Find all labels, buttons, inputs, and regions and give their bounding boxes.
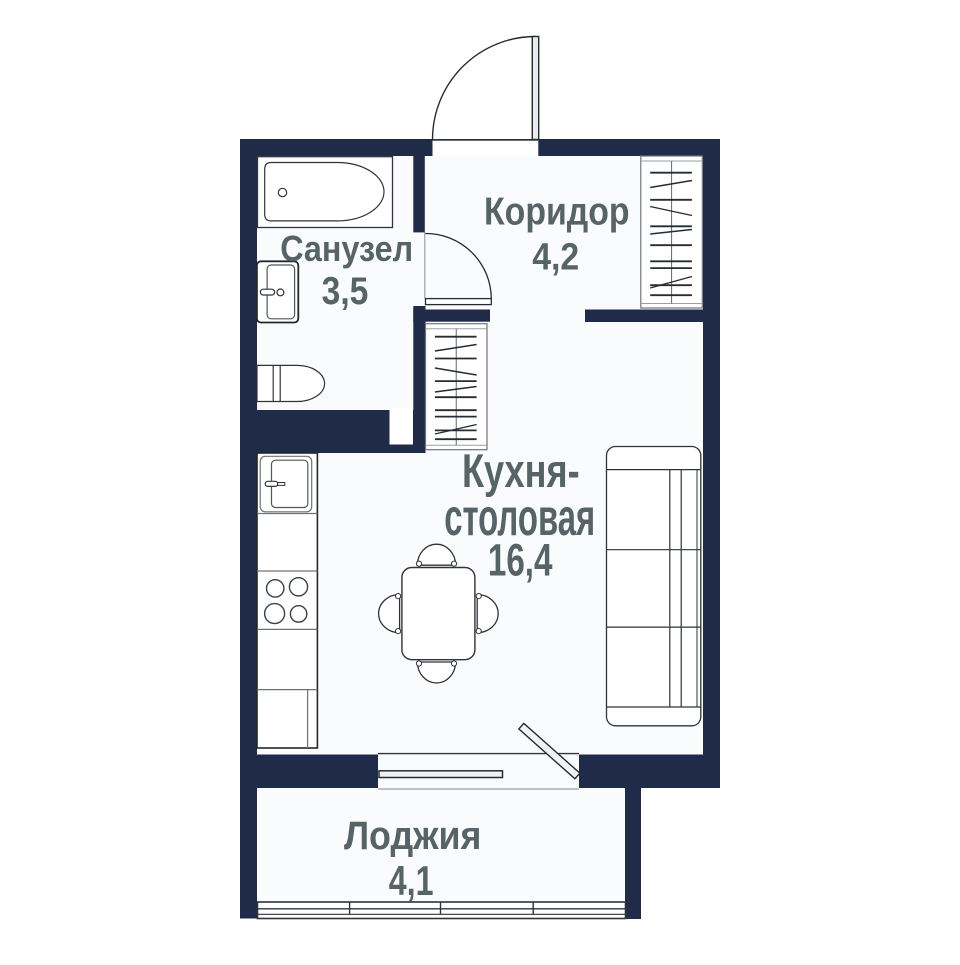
svg-text:Санузел: Санузел	[280, 228, 413, 269]
svg-text:Лоджия: Лоджия	[344, 814, 482, 858]
svg-text:4,2: 4,2	[532, 235, 579, 277]
svg-text:Коридор: Коридор	[484, 191, 630, 234]
svg-text:4,1: 4,1	[389, 858, 434, 904]
svg-text:3,5: 3,5	[322, 270, 369, 313]
svg-text:16,4: 16,4	[488, 534, 553, 585]
